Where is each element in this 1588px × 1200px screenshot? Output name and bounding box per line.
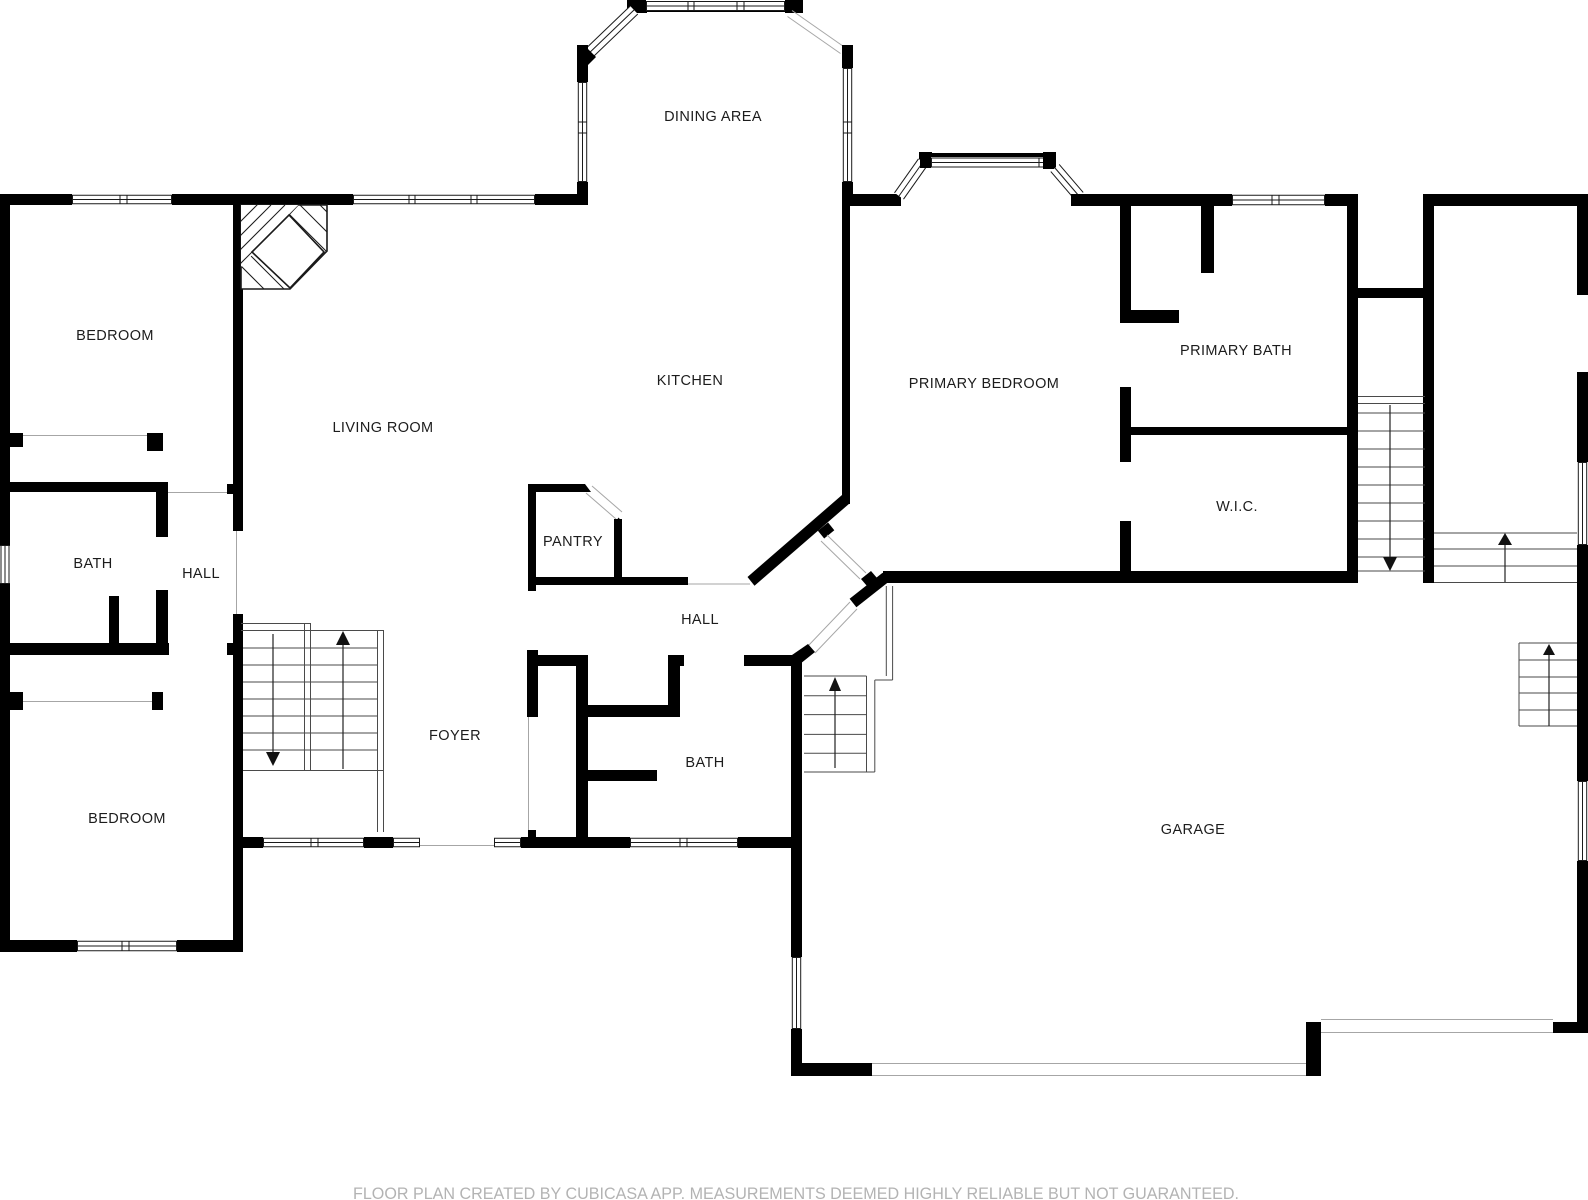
svg-text:LIVING ROOM: LIVING ROOM xyxy=(332,420,433,436)
svg-text:FLOOR PLAN CREATED BY CUBICASA: FLOOR PLAN CREATED BY CUBICASA APP. MEAS… xyxy=(353,1185,1239,1200)
svg-text:BEDROOM: BEDROOM xyxy=(76,328,154,344)
svg-text:HALL: HALL xyxy=(681,612,719,628)
svg-text:GARAGE: GARAGE xyxy=(1161,822,1225,838)
svg-text:PANTRY: PANTRY xyxy=(543,534,603,550)
svg-text:FOYER: FOYER xyxy=(429,728,481,744)
svg-text:BEDROOM: BEDROOM xyxy=(88,811,166,827)
svg-text:BATH: BATH xyxy=(685,755,724,771)
svg-text:W.I.C.: W.I.C. xyxy=(1216,499,1258,515)
svg-text:KITCHEN: KITCHEN xyxy=(657,373,723,389)
svg-text:DINING AREA: DINING AREA xyxy=(664,109,762,125)
svg-text:PRIMARY BEDROOM: PRIMARY BEDROOM xyxy=(909,376,1060,392)
svg-text:HALL: HALL xyxy=(182,566,220,582)
svg-text:PRIMARY BATH: PRIMARY BATH xyxy=(1180,343,1292,359)
svg-text:BATH: BATH xyxy=(73,556,112,572)
